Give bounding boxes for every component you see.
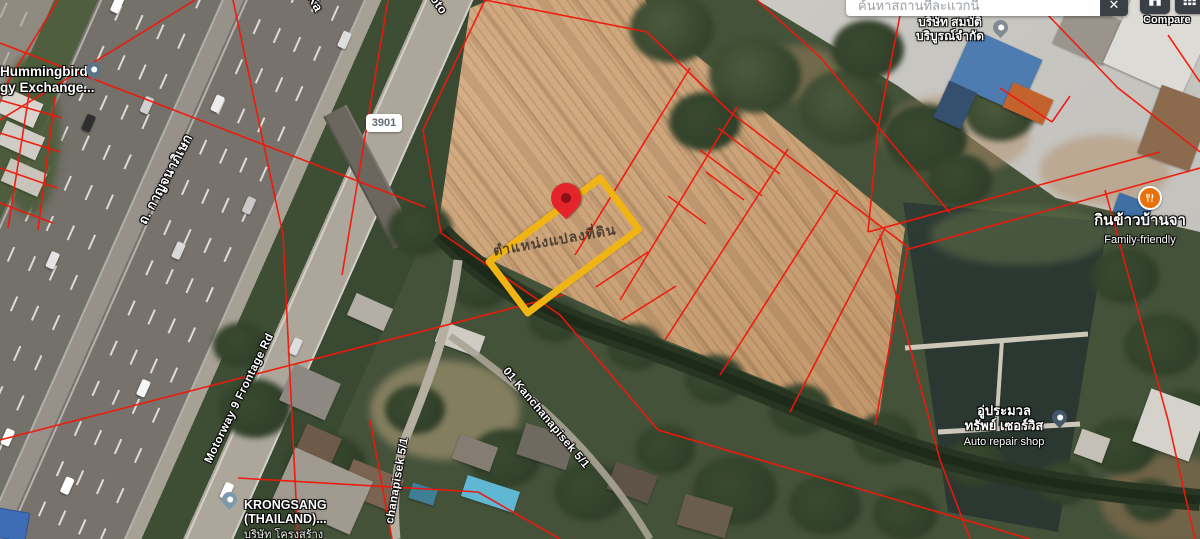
poi-restaurant[interactable]: กินข้าวบ้านจา Family-friendly xyxy=(1085,212,1195,249)
map-overlay-lines xyxy=(0,0,1200,539)
poi-company[interactable]: บริษัท สมบัติ บริบูรณ์จำกัด xyxy=(905,16,995,44)
poi-auto-line1: อู่ประมวล xyxy=(977,403,1031,418)
highway-sign xyxy=(0,507,30,539)
building-view-button[interactable] xyxy=(1140,0,1170,14)
poi-auto-subtitle: Auto repair shop xyxy=(964,436,1045,448)
poi-krongsang-line3: บริษัท โครงสร้าง xyxy=(244,529,323,539)
close-icon[interactable]: ✕ xyxy=(1100,0,1128,16)
grid-icon xyxy=(1182,0,1198,7)
compare-label: Compare xyxy=(1143,14,1200,26)
poi-restaurant-subtitle: Family-friendly xyxy=(1104,234,1176,246)
search-input[interactable] xyxy=(846,0,1100,16)
poi-krongsang[interactable]: KRONGSANG (THAILAND)... บริษัท โครงสร้าง xyxy=(244,498,327,539)
poi-hummingbird-line2: gy Exchange... xyxy=(0,80,95,95)
satellite-map[interactable]: ตำแหน่งแปลงที่ดิน ถ. กาญจนาภิเษก Ka Moto… xyxy=(0,0,1200,539)
poi-restaurant-name: กินข้าวบ้านจา xyxy=(1094,212,1186,229)
grid-view-button[interactable] xyxy=(1175,0,1200,14)
restaurant-icon[interactable] xyxy=(1138,186,1162,210)
poi-krongsang-line2: (THAILAND)... xyxy=(244,512,327,526)
route-shield-3901: 3901 xyxy=(366,114,402,132)
cadastral-lines xyxy=(0,0,1200,539)
search-bar[interactable]: ✕ xyxy=(846,0,1128,16)
poi-krongsang-line1: KRONGSANG xyxy=(244,498,327,512)
village-road xyxy=(395,260,458,539)
building-icon xyxy=(1147,0,1163,7)
poi-auto-line2: ทรัพย์ เซอร์วิส xyxy=(965,418,1044,433)
poi-hummingbird-line1: Hummingbird xyxy=(0,64,88,79)
poi-hummingbird[interactable]: Hummingbird gy Exchange... xyxy=(0,64,84,95)
poi-company-line1: บริษัท สมบัติ xyxy=(918,15,982,29)
poi-auto-repair[interactable]: อู่ประมวล ทรัพย์ เซอร์วิส Auto repair sh… xyxy=(958,404,1050,449)
poi-company-line2: บริบูรณ์จำกัด xyxy=(916,29,984,43)
kanchanapisek-51-road xyxy=(450,336,650,539)
